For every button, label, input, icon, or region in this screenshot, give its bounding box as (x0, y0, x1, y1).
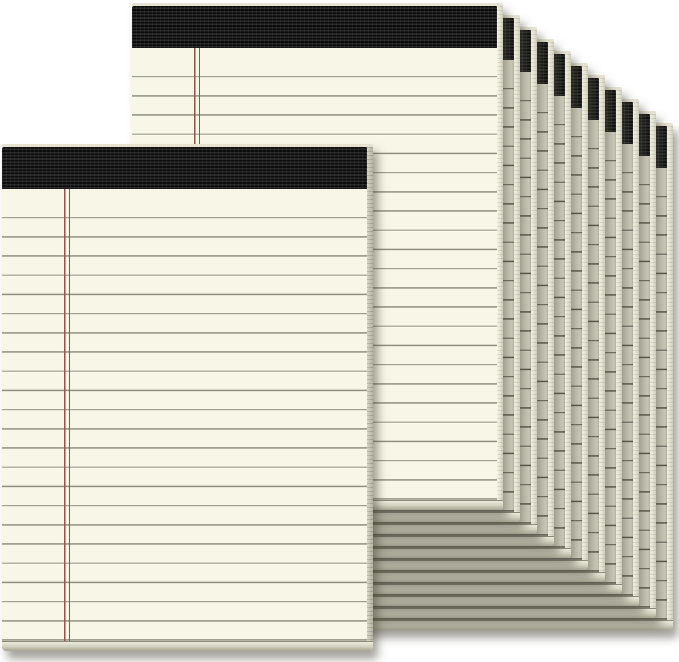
pad-side-page-edges (650, 114, 656, 609)
pad-side-page-edges (514, 18, 520, 513)
pad-side-page-edges (565, 54, 571, 549)
pad-binding (132, 6, 497, 48)
legal-pads-product-photo (0, 0, 679, 662)
pad-binding (2, 147, 367, 189)
pad-ruled-paper (2, 189, 367, 642)
pad-side-page-edges (616, 90, 622, 585)
pad-side-page-edges (367, 147, 373, 642)
red-margin-line (64, 189, 71, 642)
pad-side-page-edges (548, 42, 554, 537)
pad-side-page-edges (531, 30, 537, 525)
pad-bottom-page-edges (2, 641, 373, 651)
pad-side-page-edges (667, 126, 673, 621)
pad-side-page-edges (633, 102, 639, 597)
legal-pad-front (2, 144, 373, 651)
pad-side-page-edges (497, 6, 503, 501)
pad-side-page-edges (599, 78, 605, 573)
pad-side-page-edges (582, 66, 588, 561)
